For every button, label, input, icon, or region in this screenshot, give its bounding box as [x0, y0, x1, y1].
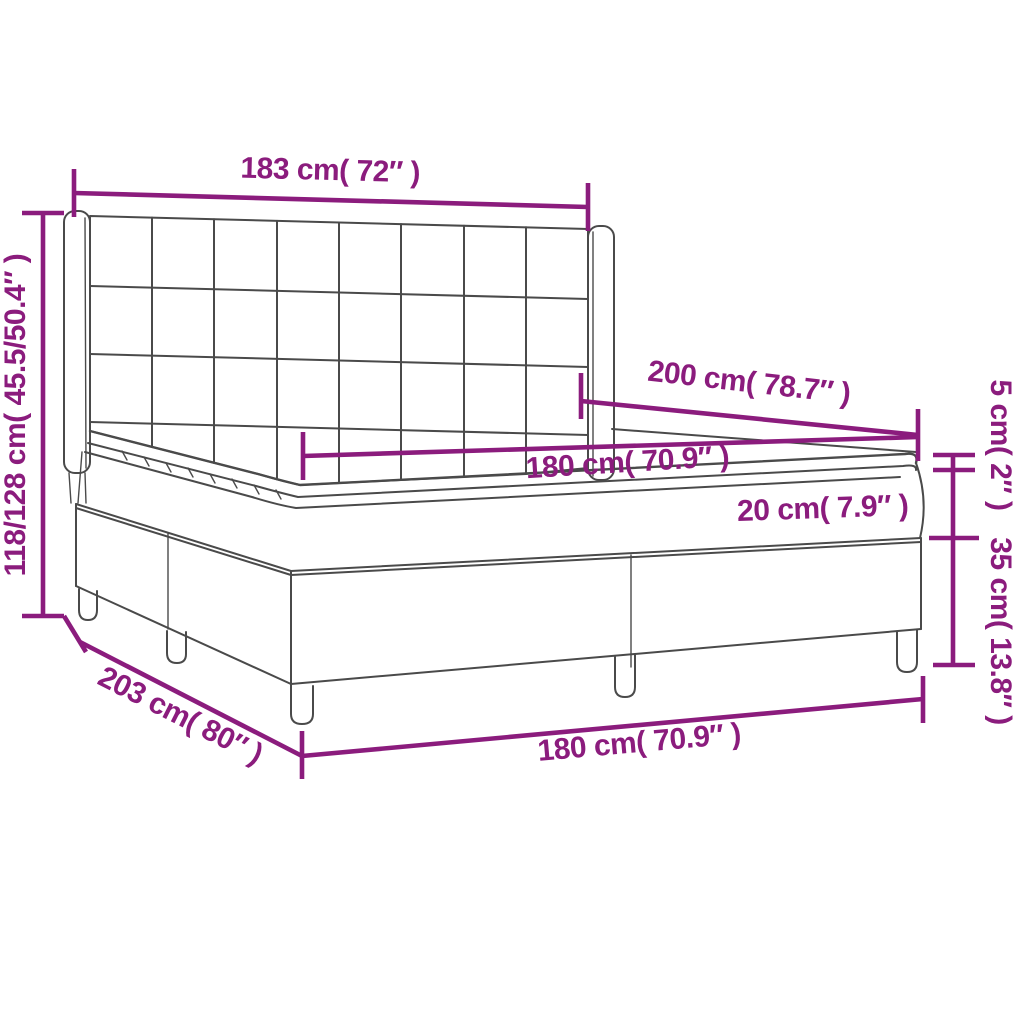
headboard-right-wing	[588, 226, 614, 480]
dim-base-height-label: 35 cm( 13.8″ )	[984, 537, 1017, 724]
leg-5	[897, 630, 917, 672]
dim-overall-height-label: 118/128 cm( 45.5/50.4″ )	[0, 254, 32, 577]
base-bottom-right-edge	[291, 629, 921, 684]
dim-base-length-label: 203 cm( 80″ )	[93, 660, 268, 771]
left-wing-contour	[85, 218, 86, 468]
dimension-diagram: 183 cm( 72″ ) 118/128 cm( 45.5/50.4″ ) 2…	[0, 0, 1024, 1024]
dim-topper-thickness-label: 5 cm( 2″ )	[984, 379, 1017, 510]
leg-3	[291, 684, 313, 724]
dim-right-height-column	[929, 453, 979, 665]
leg-4	[615, 655, 635, 697]
dim-bed-length-label: 200 cm( 78.7″ )	[646, 355, 852, 411]
box-spring-base	[76, 504, 921, 684]
mattress-right-end-curve	[916, 463, 924, 538]
dim-headboard-width-label: 183 cm( 72″ )	[240, 152, 420, 190]
bed-drawing: 183 cm( 72″ ) 118/128 cm( 45.5/50.4″ ) 2…	[0, 0, 1024, 1024]
left-wing-foot	[69, 473, 86, 503]
dim-mattress-thickness-label: 20 cm( 7.9″ )	[736, 489, 908, 528]
